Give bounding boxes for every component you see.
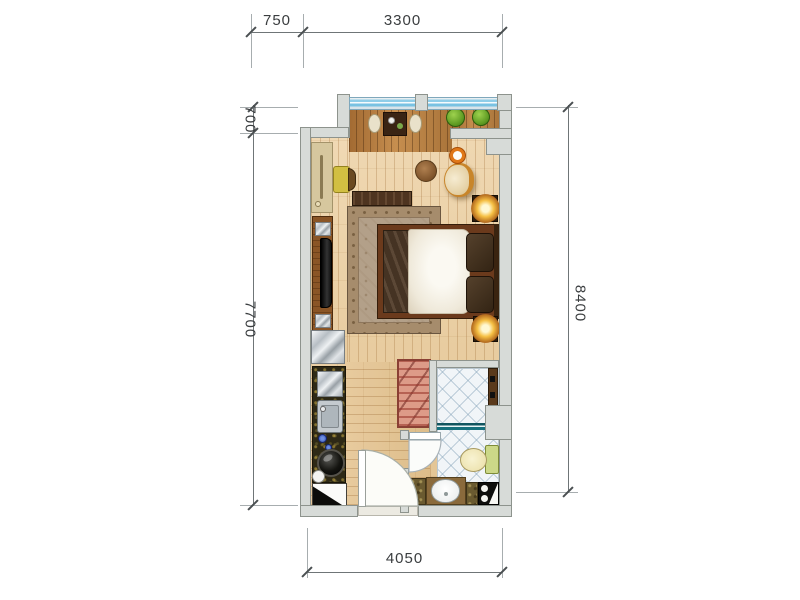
dim-label-8400: 8400 — [572, 274, 589, 334]
dim-label-3300: 3300 — [303, 12, 502, 29]
bathroom-door-leaf — [409, 432, 441, 440]
entry-door-leaf — [358, 450, 366, 507]
dim-label-750: 750 — [251, 12, 303, 29]
dim-ext — [502, 14, 503, 68]
bathroom-door-arc — [409, 440, 441, 472]
door-swing-arcs — [0, 0, 800, 600]
dim-line-right — [568, 105, 569, 492]
floor-plan-canvas: 750 3300 700 7700 8400 4050 — [0, 0, 800, 600]
dim-label-7700: 7700 — [242, 290, 259, 350]
dim-label-700: 700 — [242, 90, 259, 150]
dim-label-4050: 4050 — [307, 550, 502, 567]
dim-ext — [240, 505, 298, 506]
dim-line-bottom — [307, 572, 502, 573]
dim-line-top — [251, 32, 503, 33]
